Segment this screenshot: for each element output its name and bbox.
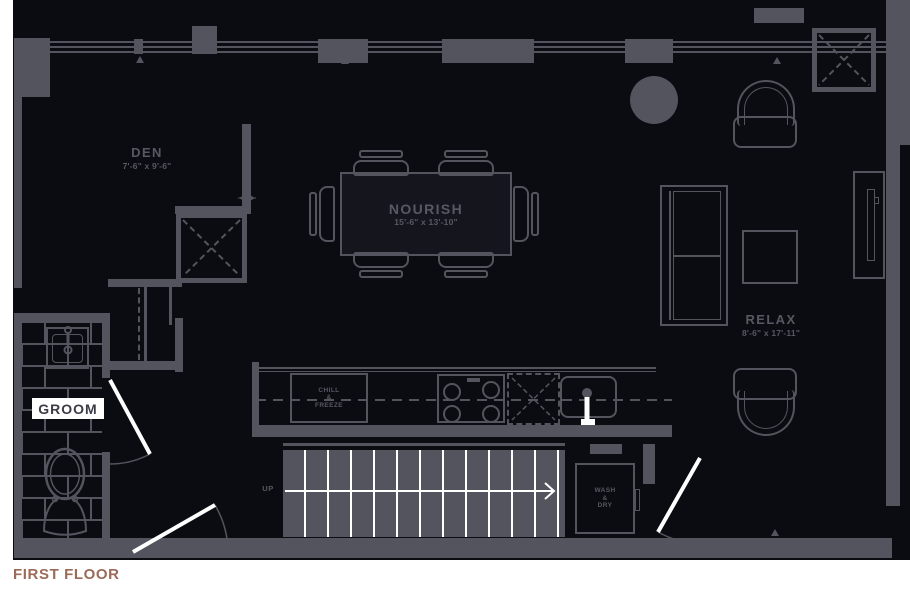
washer-dryer: WASH & DRY — [575, 463, 635, 534]
wall-pier — [318, 39, 368, 63]
counter-bottom-wall — [252, 425, 672, 437]
right-wall — [886, 0, 900, 506]
top-right-closet-box — [812, 28, 876, 92]
room-name-relax: RELAX — [710, 313, 832, 328]
dining-chair — [438, 252, 494, 268]
bathroom-sink-basin — [52, 334, 83, 363]
washer-dryer-nub — [635, 489, 640, 511]
tv-mount — [874, 197, 879, 204]
burner-icon — [443, 383, 461, 401]
room-name-groom: GROOM — [38, 401, 97, 417]
dining-table: NOURISH 15'-6" x 13'-10" — [340, 172, 512, 256]
dining-chair — [444, 270, 488, 278]
room-label-den: DEN 7'-6" x 9'-6" — [86, 146, 208, 172]
refrigerator: CHILL & FREEZE — [290, 373, 368, 423]
dining-chair — [444, 150, 488, 158]
coffee-table — [742, 230, 798, 284]
counter-edge-line — [258, 367, 656, 369]
bathroom-left-wall — [14, 313, 22, 558]
den-left-wall — [14, 38, 22, 288]
stairs — [283, 450, 565, 537]
bathroom-right-wall — [102, 452, 110, 552]
room-dims-relax: 8'-6" x 17'-11" — [710, 329, 832, 339]
room-dims-den: 7'-6" x 9'-6" — [86, 162, 208, 172]
kitchen-sink — [560, 376, 617, 418]
room-name-nourish: NOURISH — [389, 201, 463, 217]
sliding-door-track — [138, 288, 140, 360]
dining-chair — [531, 192, 539, 236]
burner-icon — [443, 405, 461, 423]
dining-chair — [513, 186, 529, 242]
dining-chair — [353, 160, 409, 176]
sliding-door-panel — [144, 287, 147, 361]
wall-pier — [442, 39, 534, 63]
floor-title: FIRST FLOOR — [13, 566, 120, 583]
side-table — [630, 76, 678, 124]
laundry-right-wall — [643, 444, 655, 484]
dining-chair — [353, 252, 409, 268]
dining-chair — [359, 150, 403, 158]
dining-chair — [359, 270, 403, 278]
wall-pier — [192, 26, 217, 54]
sliding-door-panel — [169, 287, 172, 325]
den-closet-box — [176, 213, 247, 283]
laundry-top-wall — [590, 444, 622, 454]
washer-dryer-label: WASH & DRY — [594, 487, 615, 509]
sliding-closet-bottom-wall — [108, 361, 182, 370]
stove-control — [467, 378, 480, 382]
hall-wall — [175, 318, 183, 372]
dining-chair — [438, 160, 494, 176]
wall-pier — [134, 39, 143, 54]
bottom-wall — [14, 538, 892, 558]
sofa-back-line — [669, 191, 671, 320]
room-dims-nourish: 15'-6" x 13'-10" — [394, 218, 458, 228]
groom-label-box: GROOM — [32, 398, 104, 419]
counter-edge-line — [258, 371, 656, 372]
sliding-closet-top-wall — [108, 279, 182, 287]
stairs-top-rail — [283, 443, 565, 446]
dishwasher — [507, 373, 560, 425]
floor-plan: CHILL & FREEZE WASH & DRY NOURISH 15'-6"… — [0, 0, 910, 594]
refrigerator-label: CHILL & FREEZE — [315, 387, 343, 409]
sofa-cushion-divider — [673, 255, 721, 257]
room-name-den: DEN — [86, 146, 208, 161]
top-right-wall — [754, 8, 804, 23]
armchair-seat — [733, 116, 797, 148]
dining-chair — [309, 192, 317, 236]
wall-pier — [625, 39, 673, 63]
room-label-relax: RELAX 8'-6" x 17'-11" — [710, 313, 832, 339]
burner-icon — [482, 381, 500, 399]
burner-icon — [482, 405, 500, 423]
bathroom-top-wall — [14, 313, 110, 321]
dining-chair — [319, 186, 335, 242]
stairs-up-label: UP — [258, 485, 278, 494]
bathroom-right-wall — [102, 313, 110, 378]
den-right-wall — [242, 124, 251, 213]
